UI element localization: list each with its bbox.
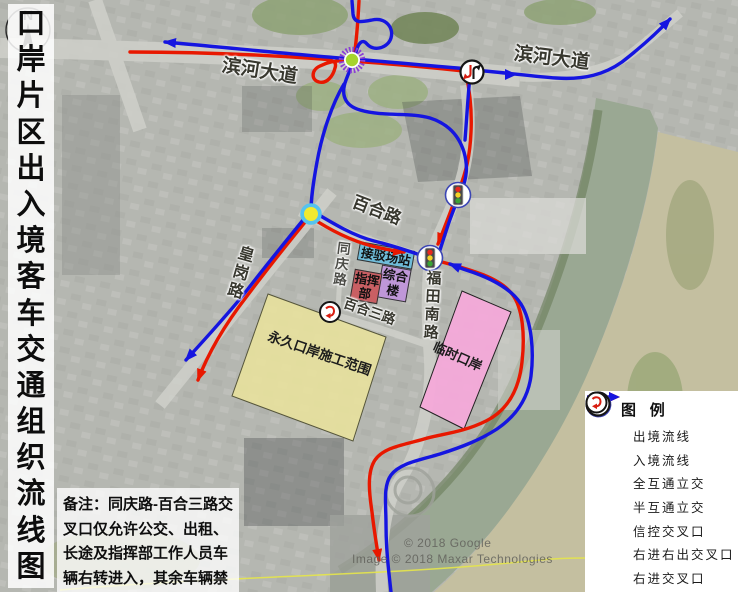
title-char: 区	[16, 119, 45, 148]
title-char: 入	[16, 191, 45, 220]
title-char: 出	[16, 155, 45, 184]
full-interchange-icon	[342, 50, 363, 71]
half-interchange-icon	[303, 206, 320, 223]
title-char: 通	[16, 372, 45, 401]
legend-title: 图 例	[621, 399, 738, 420]
complex-building-box: 综合楼	[376, 265, 411, 303]
entry-binhe-west-line	[165, 42, 470, 69]
title-char: 车	[16, 300, 45, 329]
signal-intersection-icon-south	[418, 246, 443, 271]
title-char: 交	[16, 336, 45, 365]
map-title: 口 岸 片 区 出 入 境 客 车 交 通 组 织 流 线 图	[8, 4, 54, 588]
legend-item-entry: 入境流线	[585, 448, 738, 472]
legend-item-right-in: 右进交叉口	[585, 566, 738, 590]
entry-mid-arrow	[505, 69, 517, 80]
temporary-port-label: 临时口岸	[430, 336, 485, 375]
exit-huanggang-line	[198, 216, 310, 380]
google-watermark: © 2018 Google	[404, 536, 491, 550]
legend-item-signal: 信控交叉口	[585, 518, 738, 542]
title-char: 境	[16, 227, 45, 256]
complex-building-label: 综合楼	[378, 266, 411, 300]
road-label-baihe: 百合路	[349, 188, 406, 230]
traffic-flow-map: 接驳场站 综合楼 指挥部	[0, 0, 738, 592]
road-label-binhe-west: 滨河大道	[220, 50, 299, 89]
title-char: 口	[16, 10, 45, 39]
title-char: 流	[16, 480, 45, 509]
legend-item-exit: 出境流线	[585, 424, 738, 448]
title-char: 岸	[16, 46, 45, 75]
entry-icon-stub-line	[465, 76, 470, 140]
road-label-huanggang: 皇岗路	[219, 242, 258, 303]
note-text: 备注：同庆路-百合三路交叉口仅允许公交、出租、长途及指挥部工作人员车辆右转进入，…	[63, 496, 233, 592]
right-in-right-out-icon	[461, 61, 484, 84]
construction-area-label: 永久口岸施工范围	[266, 325, 375, 379]
exit-flow-lines	[130, 1, 523, 560]
title-char: 图	[16, 553, 45, 582]
note-box: 备注：同庆路-百合三路交叉口仅允许公交、出租、长途及指挥部工作人员车辆右转进入，…	[57, 488, 239, 592]
imagery-watermark: Image © 2018 Maxar Technologies	[352, 552, 553, 566]
exit-north-stub-line	[354, 1, 359, 57]
title-char: 组	[16, 408, 45, 437]
right-in-icon	[320, 302, 340, 322]
road-label-futiannan: 福田南路	[419, 269, 444, 342]
signal-intersection-icon-north	[446, 183, 471, 208]
entry-interchange-to-baihe-line	[311, 84, 344, 212]
river-tree-line	[340, 110, 598, 570]
legend-item-half-interchange: 半互通立交	[585, 495, 738, 519]
ramp-spiral	[386, 468, 434, 516]
title-char: 客	[16, 263, 45, 292]
road-label-binhe-east: 滨河大道	[513, 38, 592, 74]
title-char: 线	[16, 517, 45, 546]
legend: 图 例 出境流线 入境流线 全互通立交 半互通立交 信控交叉口	[585, 391, 738, 592]
legend-item-right-in-right-out: 右进右出交叉口	[585, 542, 738, 566]
title-char: 片	[16, 82, 45, 111]
legend-item-full-interchange: 全互通立交	[585, 471, 738, 495]
exit-futian-south-line	[438, 74, 471, 244]
road-label-tongqing: 同庆路	[327, 240, 353, 289]
title-char: 织	[16, 444, 45, 473]
